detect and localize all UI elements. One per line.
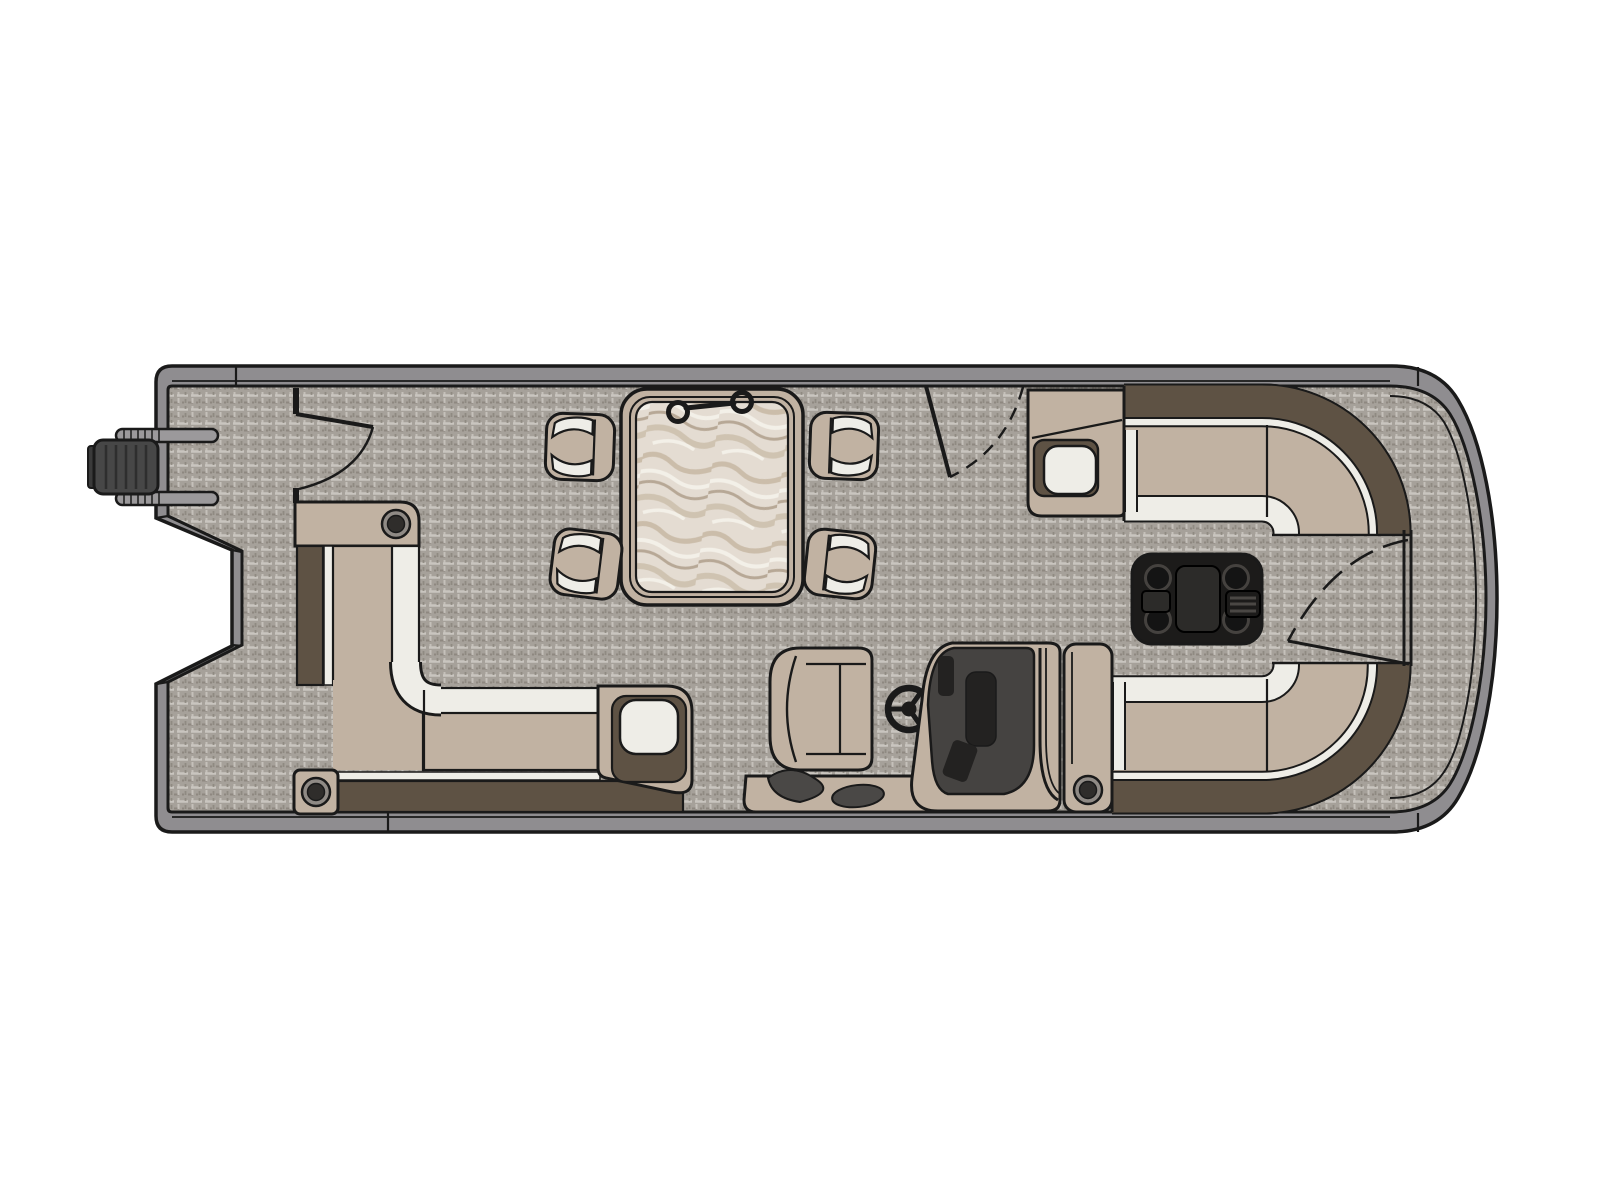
- chair-body: [770, 648, 872, 770]
- gauge-cluster: [966, 672, 996, 746]
- bow-armrest: [1028, 390, 1124, 516]
- console-armrest: [1064, 644, 1112, 812]
- bench-backrest-horizontal: [335, 781, 683, 812]
- dinette-table-marble-top: [636, 402, 788, 592]
- cup-holder: [1074, 776, 1102, 804]
- cup-holder: [1224, 566, 1249, 591]
- dinette-stool: [545, 413, 615, 481]
- helm-console: [912, 643, 1060, 811]
- table-tray: [1142, 591, 1170, 612]
- gauge: [938, 656, 954, 696]
- starboard-bow-lounge: [1028, 386, 1394, 535]
- dinette-stool: [548, 527, 624, 601]
- floorplan-drawing: [0, 0, 1600, 1200]
- captain-chair: [770, 648, 872, 770]
- helm-station: [744, 643, 1112, 812]
- wheel-hub: [902, 702, 917, 717]
- chaise-armrest: [598, 686, 692, 793]
- table-center-panel: [1176, 566, 1220, 632]
- cup-holder: [382, 510, 410, 538]
- bench-seat-vertical: [333, 546, 393, 685]
- dinette-stool: [809, 412, 879, 480]
- bench-piping: [335, 772, 600, 780]
- pontoon-floorplan-canvas: [0, 0, 1600, 1200]
- armrest-pad: [1044, 446, 1096, 494]
- dinette-stool: [803, 528, 878, 601]
- cup-holder: [302, 778, 330, 806]
- bench-piping: [324, 546, 333, 685]
- bench-front-band: [392, 546, 419, 668]
- bow-table: [1132, 554, 1262, 644]
- bench-seat-horizontal: [423, 712, 600, 770]
- cup-holder: [1146, 566, 1171, 591]
- headrest-pad: [620, 700, 678, 754]
- bench-backrest-vertical: [297, 546, 323, 685]
- bench-front-band: [437, 688, 600, 713]
